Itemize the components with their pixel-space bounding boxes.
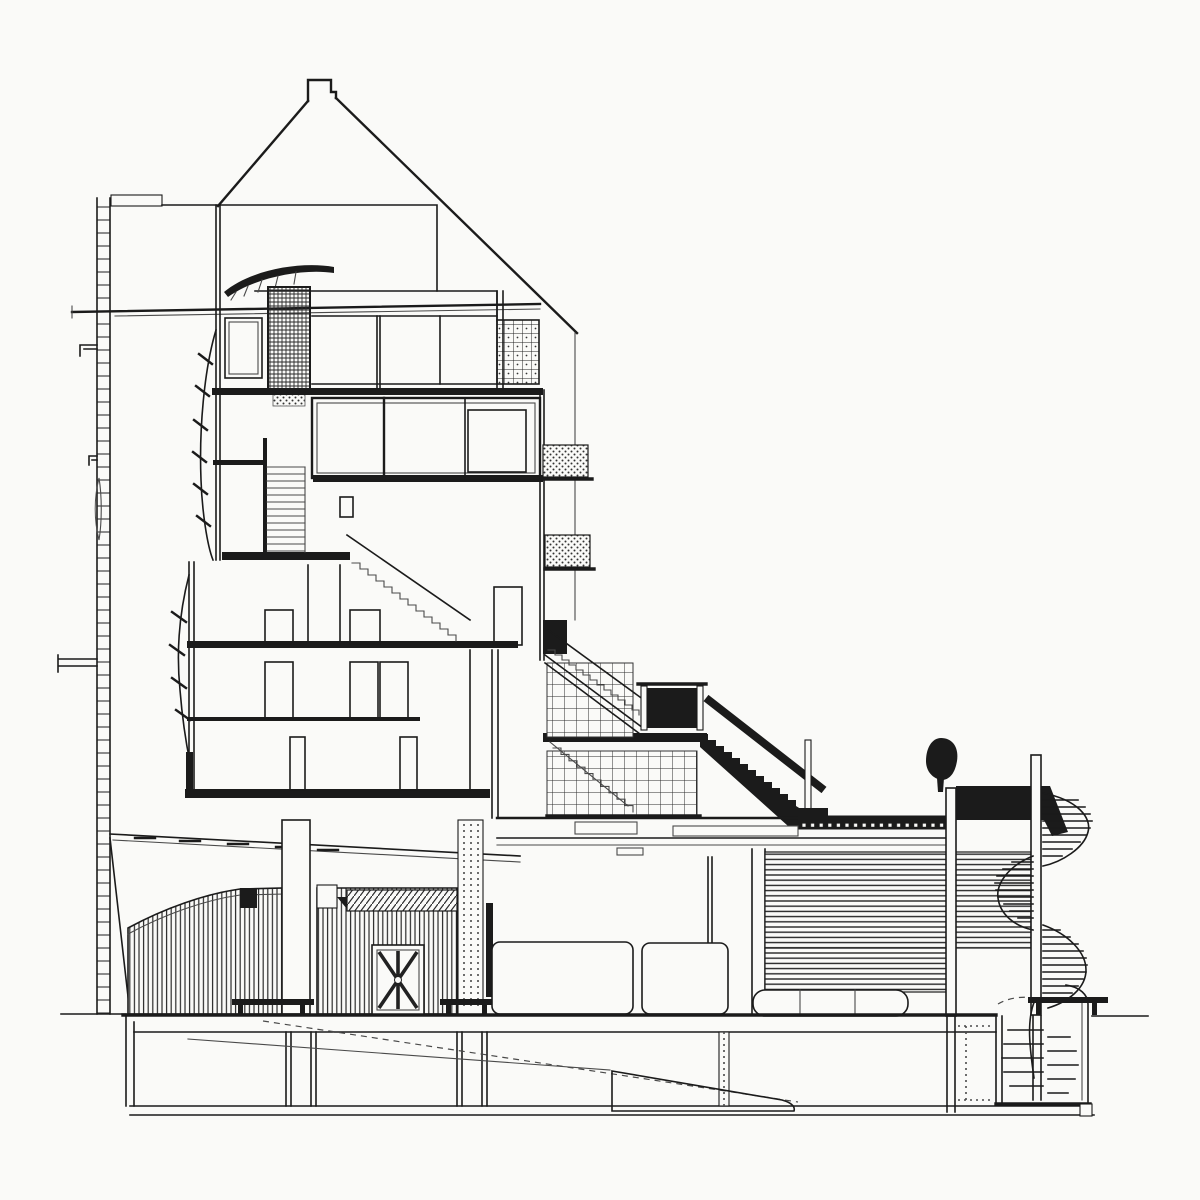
fan-window: [372, 945, 424, 1015]
mast-rungs: [97, 200, 110, 1014]
plinth-right: [642, 943, 728, 1014]
mast-bracket-upper: [80, 345, 97, 356]
spiral-bench: [1028, 997, 1108, 1003]
glazed-stair-hall: [545, 630, 706, 817]
pavilion-column-left: [946, 788, 956, 1016]
hall-pier-left: [282, 820, 310, 1014]
louver-wall-lower: [765, 948, 947, 992]
upper-door: [494, 587, 522, 645]
tower-left-wall: [170, 205, 220, 790]
well-left-wall: [996, 1016, 1002, 1104]
balcony-lower: [545, 535, 590, 567]
elevator-shaft: [268, 287, 310, 393]
second-window-band: [312, 398, 540, 478]
mast-bracket-lower: [58, 655, 97, 672]
chimney: [308, 80, 336, 101]
attic-window: [225, 318, 262, 378]
right-balconies: [540, 390, 594, 660]
wall-niche: [340, 497, 353, 517]
diagonal-hatch-band: [347, 890, 457, 911]
perforated-deck-railing: [799, 816, 947, 829]
stair-railing: [347, 535, 470, 620]
spiral-center-column: [1031, 755, 1041, 1015]
architectural-section-drawing: [0, 0, 1200, 1200]
pavilion-column-below: [947, 1016, 955, 1112]
tower-right-wall: [540, 390, 544, 660]
bowed-glass-wall-lower: [178, 575, 192, 772]
basement-columns: [286, 1032, 487, 1106]
rooftop-canopy: [72, 265, 540, 406]
stair-post: [263, 438, 267, 560]
mast-bracket-mid: [89, 456, 97, 465]
tree-canopy: [926, 738, 957, 780]
section-canvas: [0, 0, 1200, 1200]
landing-balustrade: [646, 688, 698, 728]
lounge-wall: [752, 849, 765, 1014]
hall-left-wall: [110, 838, 130, 1014]
basement-left-wall: [126, 1016, 134, 1106]
roof-slope-right: [336, 98, 577, 333]
partition: [708, 857, 712, 943]
upper-parapet: [162, 205, 437, 291]
interior-stair-upper: [263, 438, 305, 560]
left-service-mast: [58, 195, 162, 1014]
mid-level-rooms: [308, 497, 567, 654]
mast-cap: [111, 195, 162, 206]
tree-trunk: [937, 778, 944, 792]
lower-hall: [110, 820, 496, 1015]
slat-wall-tab: [317, 885, 337, 908]
well-foot: [1080, 1104, 1092, 1116]
lounge-couch: [753, 990, 908, 1016]
plinth-left: [492, 942, 633, 1014]
louver-wall-upper: [765, 852, 1031, 948]
escalator: [700, 698, 828, 826]
slat-wall-left: [128, 888, 285, 1014]
basement-ramp-body: [612, 1071, 794, 1111]
stair-top-void: [543, 620, 567, 654]
roof-slope-left: [218, 101, 308, 206]
wall-foot: [186, 752, 193, 790]
balcony-upper: [543, 445, 588, 477]
